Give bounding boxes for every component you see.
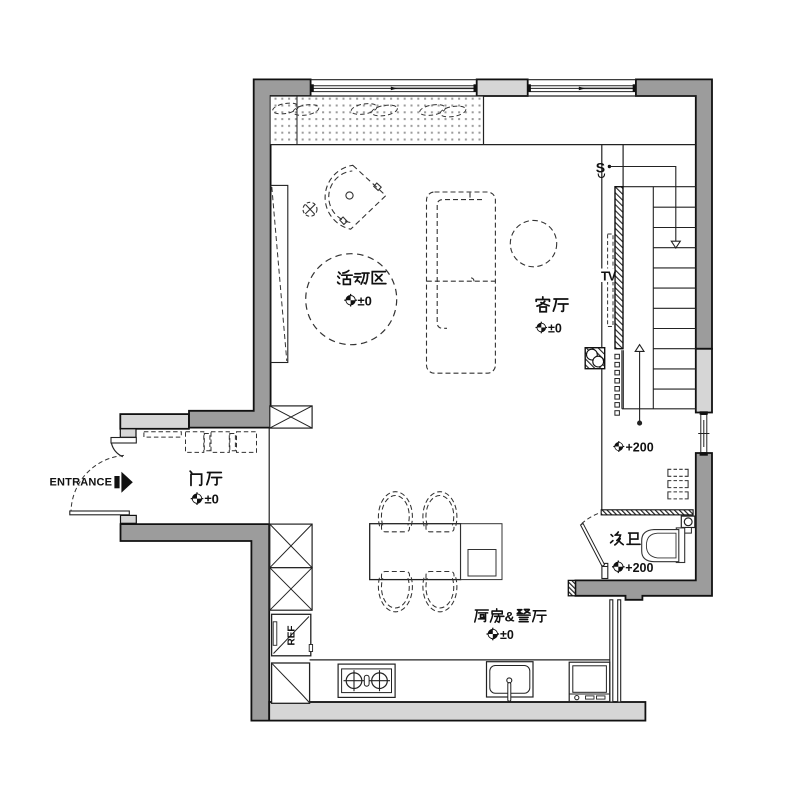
- svg-text:&: &: [505, 609, 515, 625]
- svg-text:+200: +200: [625, 561, 653, 575]
- svg-text:±0: ±0: [500, 628, 514, 642]
- svg-text:ENTRANCE: ENTRANCE: [50, 477, 113, 489]
- svg-text:REF: REF: [287, 626, 298, 646]
- svg-text:TV: TV: [601, 270, 617, 284]
- svg-text:+200: +200: [626, 441, 654, 455]
- svg-text:±0: ±0: [205, 492, 219, 507]
- svg-text:S: S: [596, 160, 605, 176]
- svg-text:±0: ±0: [358, 294, 372, 309]
- svg-text:±0: ±0: [548, 322, 562, 336]
